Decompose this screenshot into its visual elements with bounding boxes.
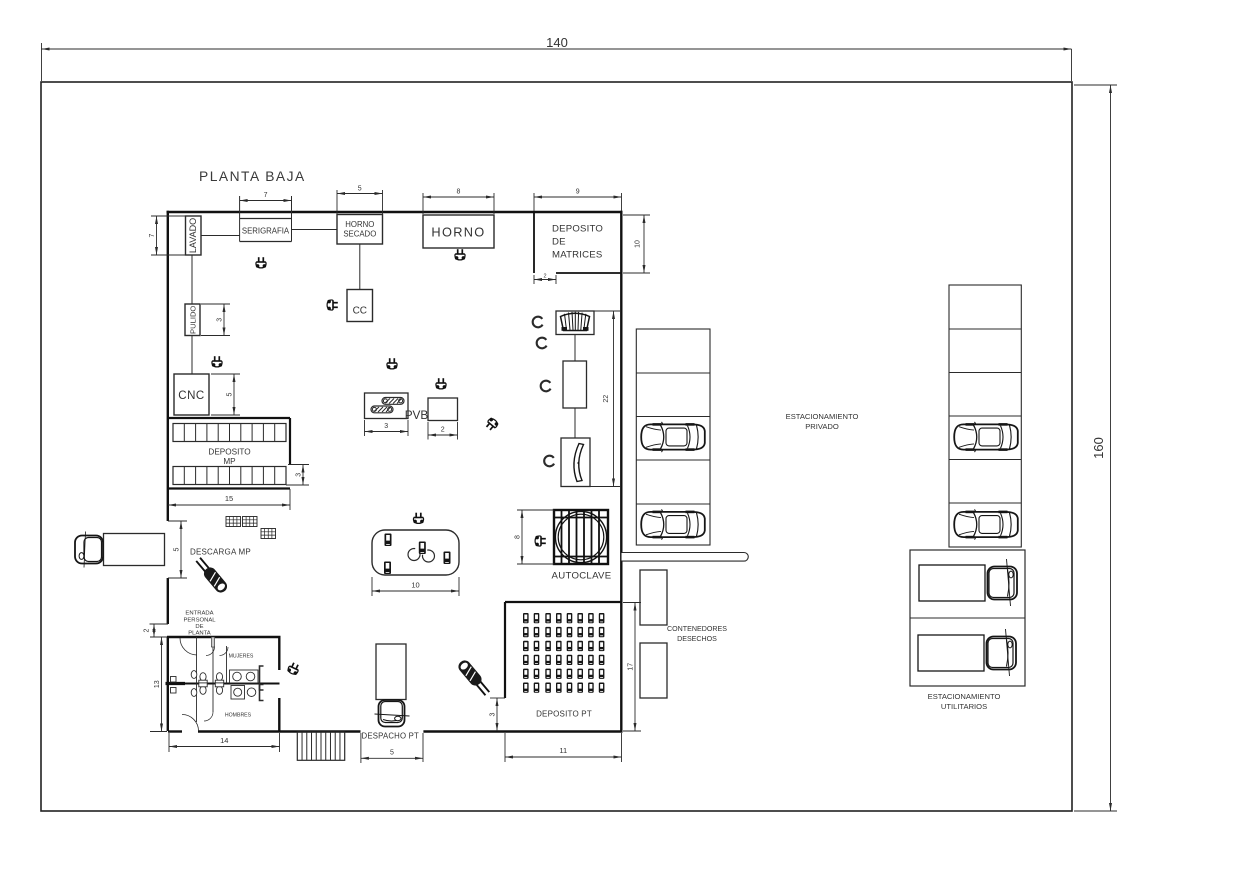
svg-text:3: 3 (490, 712, 497, 716)
svg-text:3: 3 (384, 423, 388, 430)
svg-text:14: 14 (220, 736, 228, 745)
svg-text:8: 8 (515, 535, 522, 539)
svg-text:160: 160 (1091, 437, 1106, 459)
svg-text:DESECHOS: DESECHOS (677, 635, 717, 643)
svg-text:5: 5 (227, 392, 234, 396)
svg-text:2: 2 (543, 274, 546, 280)
svg-text:5: 5 (358, 186, 362, 193)
svg-text:MP: MP (223, 457, 236, 466)
svg-text:2: 2 (144, 628, 151, 632)
svg-text:3: 3 (296, 473, 303, 477)
svg-text:DE: DE (552, 237, 566, 248)
svg-text:22: 22 (603, 395, 610, 403)
svg-text:DESCARGA MP: DESCARGA MP (190, 548, 251, 557)
svg-text:13: 13 (154, 680, 161, 688)
svg-text:AUTOCLAVE: AUTOCLAVE (552, 571, 612, 582)
svg-text:ENTRADA: ENTRADA (185, 611, 213, 617)
svg-text:9: 9 (576, 189, 580, 196)
svg-text:SECADO: SECADO (343, 230, 376, 239)
svg-text:7: 7 (264, 192, 268, 199)
svg-text:7: 7 (149, 233, 156, 237)
svg-text:10: 10 (635, 240, 642, 248)
svg-text:PLANTA BAJA: PLANTA BAJA (199, 169, 306, 184)
svg-text:5: 5 (390, 750, 394, 757)
svg-text:PULIDO: PULIDO (189, 306, 198, 334)
svg-text:MATRICES: MATRICES (552, 250, 602, 261)
svg-text:LAVADO: LAVADO (188, 218, 198, 253)
svg-text:3: 3 (217, 318, 224, 322)
svg-text:PERSONAL: PERSONAL (183, 617, 216, 623)
svg-text:SERIGRAFIA: SERIGRAFIA (242, 227, 290, 236)
svg-text:DEPOSITO: DEPOSITO (552, 224, 603, 235)
svg-text:DEPOSITO PT: DEPOSITO PT (536, 710, 592, 719)
svg-text:140: 140 (546, 35, 568, 50)
svg-text:HORNO: HORNO (431, 225, 485, 240)
svg-text:CONTENEDORES: CONTENEDORES (667, 625, 727, 633)
svg-text:DE: DE (195, 624, 203, 630)
svg-text:2: 2 (441, 427, 445, 434)
svg-text:17: 17 (628, 663, 635, 671)
svg-text:11: 11 (559, 746, 567, 755)
svg-text:UTILITARIOS: UTILITARIOS (941, 702, 987, 711)
svg-text:HORNO: HORNO (345, 220, 374, 229)
svg-text:ESTACIONAMIENTO: ESTACIONAMIENTO (928, 692, 1001, 701)
svg-text:CC: CC (353, 306, 367, 317)
svg-text:DEPOSITO: DEPOSITO (208, 448, 250, 457)
svg-text:HOMBRES: HOMBRES (225, 713, 252, 719)
svg-text:ESTACIONAMIENTO: ESTACIONAMIENTO (786, 412, 859, 421)
svg-text:5: 5 (174, 547, 181, 551)
svg-text:PRIVADO: PRIVADO (805, 422, 839, 431)
svg-text:8: 8 (457, 189, 461, 196)
svg-text:CNC: CNC (178, 390, 204, 402)
svg-text:MUJERES: MUJERES (229, 654, 254, 660)
svg-text:PVB: PVB (405, 408, 429, 422)
svg-text:10: 10 (411, 581, 419, 590)
svg-text:DESPACHO PT: DESPACHO PT (362, 732, 420, 741)
svg-text:15: 15 (225, 494, 233, 503)
